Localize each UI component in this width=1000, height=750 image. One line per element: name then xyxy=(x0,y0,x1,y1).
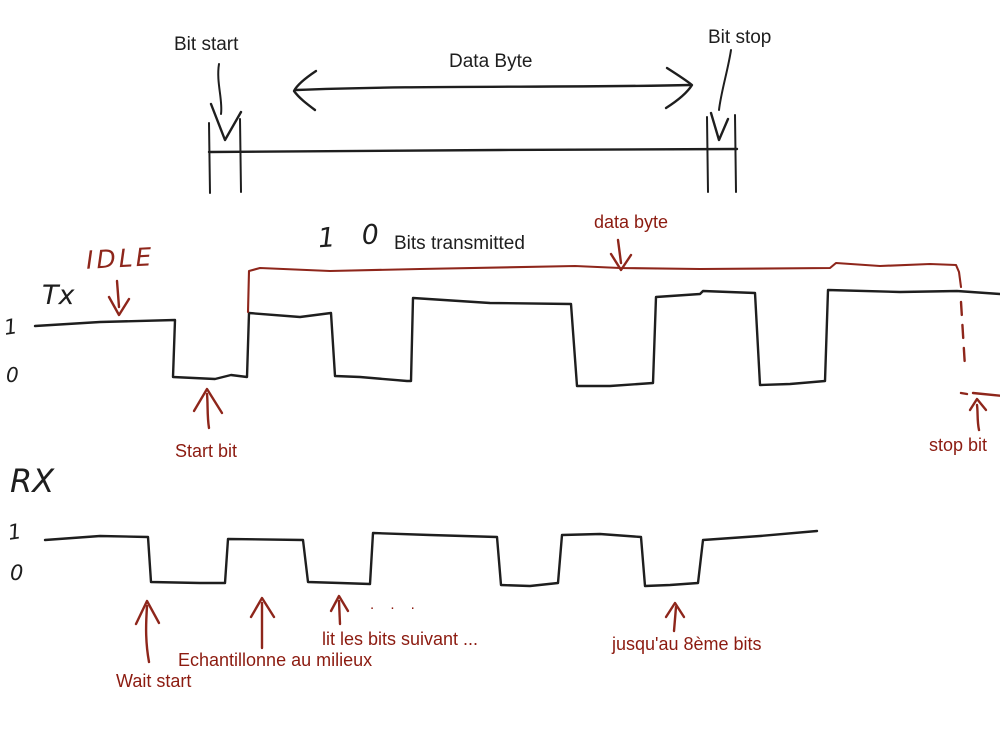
bit-start-label: Bit start xyxy=(174,34,238,56)
until-8th-bit-label: jusqu'au 8ème bits xyxy=(612,634,762,655)
data-byte-span-arrow-shaft xyxy=(296,85,690,90)
stop-bit-arrow-shaft xyxy=(977,405,979,430)
tx-signal-label: Tx xyxy=(42,280,74,311)
data-byte-span-arrow-right-head xyxy=(666,68,692,108)
tx-data-byte-bracket xyxy=(248,263,961,312)
stop-bit-label: stop bit xyxy=(929,435,987,456)
rx-waveform xyxy=(45,531,817,586)
timeline-tick-stop-right xyxy=(735,115,736,192)
uart-sketch-page: Bit start Data Byte Bit stop Bits transm… xyxy=(0,0,1000,750)
stop-bit-dashed-vertical xyxy=(961,302,965,367)
start-bit-label: Start bit xyxy=(175,441,237,462)
bit-start-arrow-head xyxy=(211,104,241,140)
ellipsis-dots: . . . xyxy=(370,596,421,613)
wait-start-arrow-shaft xyxy=(146,606,149,662)
idle-label: IDLE xyxy=(85,242,155,275)
timeline-tick-stop-left xyxy=(707,117,708,192)
wait-start-label: Wait start xyxy=(116,671,191,692)
bits-count-handwritten: 1 0 xyxy=(317,219,389,255)
timeline-tick-start-left xyxy=(209,123,210,193)
rx-level-low-label: 0 xyxy=(10,561,23,585)
data-byte-annotation-label: data byte xyxy=(594,212,668,233)
data-byte-arrow-shaft xyxy=(618,240,621,263)
read-next-bits-label: lit les bits suivant ... xyxy=(322,629,478,650)
diagram-canvas xyxy=(0,0,1000,750)
bit-stop-arrow-shaft xyxy=(719,50,731,110)
timeline-tick-start-right xyxy=(240,119,241,192)
sample-middle-label: Echantillonne au milieux xyxy=(178,650,372,671)
tx-waveform xyxy=(35,290,1000,386)
start-bit-arrow-shaft xyxy=(207,394,209,428)
bit-stop-arrow-head xyxy=(711,113,728,140)
rx-signal-label: RX xyxy=(10,462,54,500)
data-byte-span-label: Data Byte xyxy=(449,51,532,73)
until-8th-bit-arrow-shaft xyxy=(674,607,676,631)
stop-bit-dashed-horizontal xyxy=(961,393,1000,396)
bits-transmitted-label: Bits transmitted xyxy=(394,233,525,255)
bit-start-arrow-shaft xyxy=(218,64,221,114)
bit-stop-label: Bit stop xyxy=(708,27,771,49)
tx-level-low-label: 0 xyxy=(6,363,19,387)
read-next-bits-arrow-shaft xyxy=(339,601,340,624)
byte-timeline-line xyxy=(209,149,737,152)
idle-arrow-shaft xyxy=(117,281,119,307)
